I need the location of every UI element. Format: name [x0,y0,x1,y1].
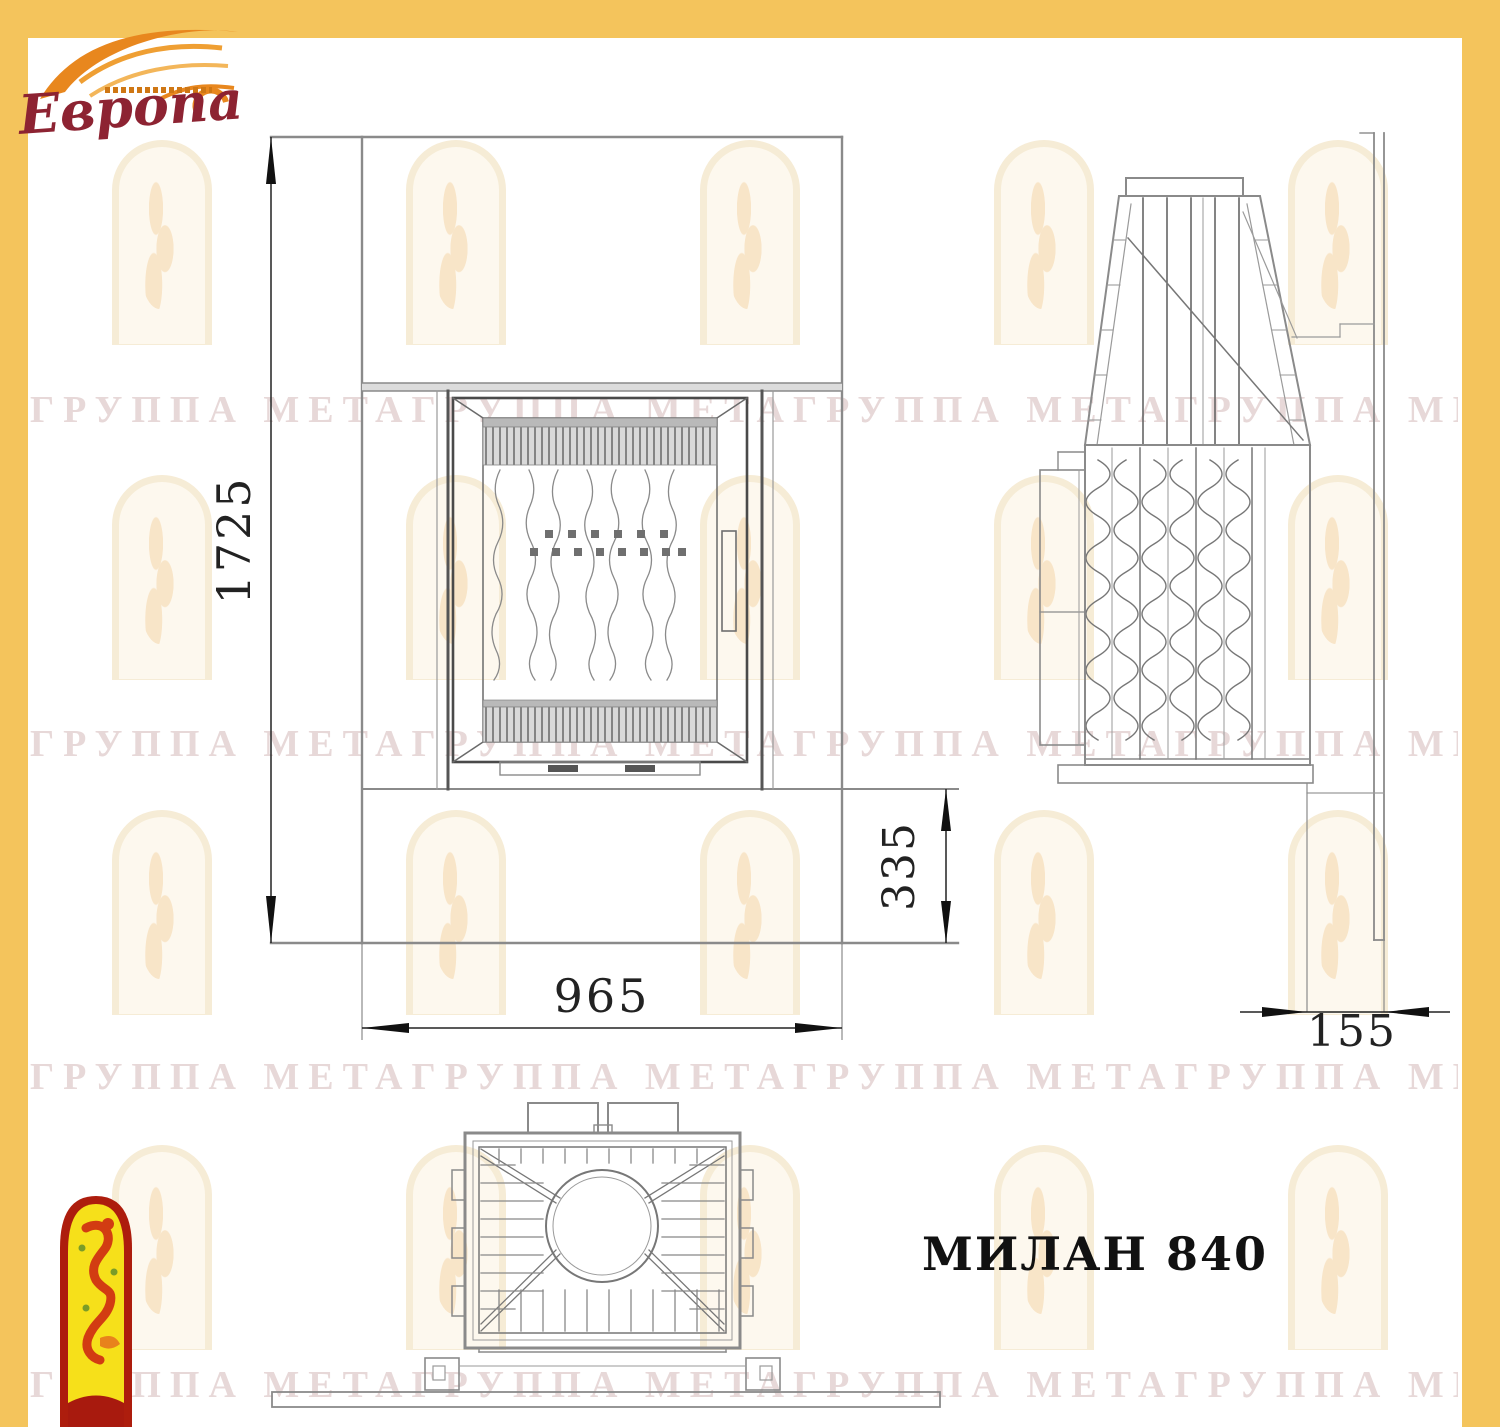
brand-name: Европа [14,67,245,147]
top-view-drawing [272,1103,940,1407]
dimension-front-height: 1725 [207,137,276,943]
front-height-label: 1725 [207,475,261,604]
side-depth-label: 155 [1307,1006,1397,1057]
dimension-side-depth: 155 [1240,783,1450,1057]
front-width-label: 965 [554,969,651,1023]
page: ГРУППА МЕТАГРУППА МЕТАГРУППА МЕТАГРУППА … [0,0,1500,1427]
dimension-front-width: 965 [362,943,842,1040]
grate-dots [530,530,686,556]
firebird-emblem-icon [56,1188,136,1427]
flame-swoosh-icon: Европа [10,4,260,156]
side-view-drawing [1040,133,1384,940]
door-handle [722,531,736,631]
front-view-drawing [271,137,958,943]
technical-drawing: 1725 335 965 [0,0,1500,1427]
brand-logo: Европа [10,4,260,156]
model-title: МИЛАН 840 [922,1227,1268,1281]
base-height-label: 335 [874,821,925,911]
dimension-base-height: 335 [874,789,951,943]
flame-lines [492,470,676,680]
